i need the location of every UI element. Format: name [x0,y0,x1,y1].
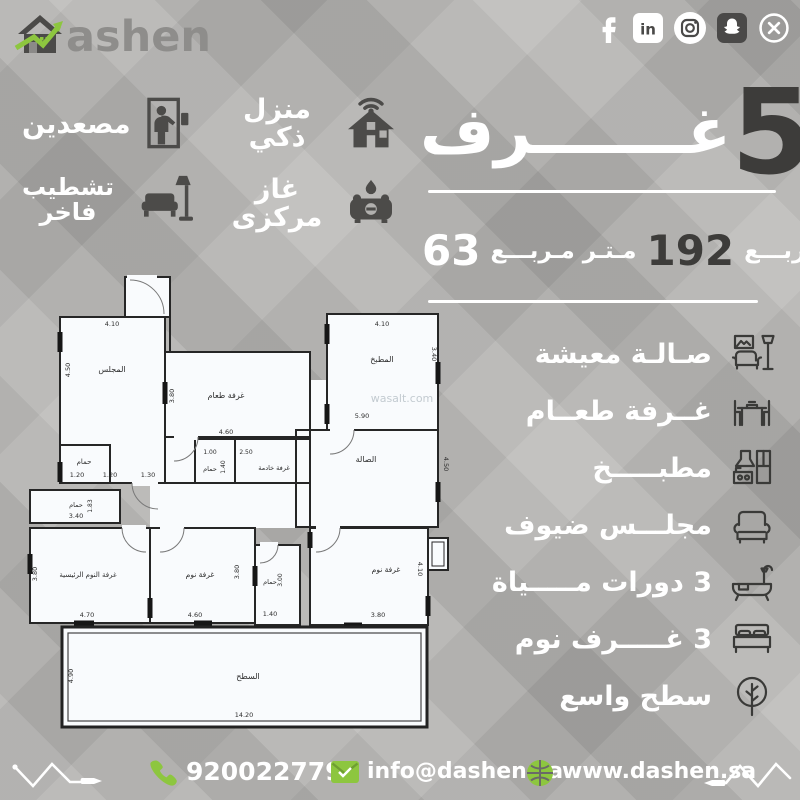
bathroom-icon [728,559,776,607]
floor-plan: المجلس 4.10 4.50 غرفة طعام 4.60 3.80 الم… [14,266,472,748]
feature-elevators: مصعدين [22,94,194,156]
dim-label: 4.10 [375,320,389,328]
room-label: حمام [77,458,92,466]
area-value-large: 192 [646,230,734,272]
room-label: حمام [263,578,277,586]
linkedin-icon[interactable]: in [633,13,663,43]
phone-number[interactable]: 920022779 [186,757,343,786]
x-icon[interactable] [758,12,790,44]
list-item: مجلـــس ضيوف [426,497,776,554]
facebook-icon[interactable] [596,13,622,43]
room-label: السطح [236,672,260,681]
smart-home-icon [342,92,400,156]
dim-label: 4.60 [219,428,233,436]
feature-label-line1: تشطيب [22,173,114,201]
divider-line-top [428,190,776,193]
dim-label: 1.40 [220,460,227,474]
guest-majlis-icon [728,502,776,550]
list-item: مطبـــــخ [426,440,776,497]
living-room-icon [728,331,776,379]
dim-label: 5.90 [355,412,369,420]
bedroom-icon [728,616,776,664]
snapchat-icon[interactable] [717,13,747,43]
feature-luxury-finishing: تشطيب فاخر [22,170,194,230]
divider-line-bottom [428,300,758,303]
dim-label: 4.70 [80,611,94,619]
headline-count: 5 [731,73,800,191]
elevator-icon [140,94,194,156]
room-label: الصالة [356,455,377,464]
feature-label: منزل ذكي [212,96,342,153]
dim-label: 4.50 [64,363,72,377]
headline-word: غـــــــرف [420,95,731,169]
dim-label: 3.40 [69,512,83,520]
roof-tree-icon [728,673,776,721]
area-measurements: 63 مـتـر مـربـــع 192 مـتـر مـربـــع [422,220,794,282]
room-label: غرفة نوم [372,565,401,574]
list-item: غــرفة طعــام [426,383,776,440]
amenity-label: سطح واسع [559,681,712,712]
feature-central-gas: غاز مركزى [212,174,400,234]
gas-stove-icon [342,174,400,234]
dim-label: 4.60 [188,611,202,619]
amenity-label: مطبـــــخ [592,453,712,484]
dim-label: 3.80 [233,565,241,579]
room-label: غرفة نوم [186,570,215,579]
feature-label: مصعدين [22,111,131,139]
globe-icon [525,758,555,792]
dim-label: 1.30 [141,471,155,479]
phone-icon [148,758,178,792]
list-item: 3 غـــــرف نوم [426,611,776,668]
dim-label: 4.90 [67,669,75,683]
dim-label: 3.80 [168,389,176,403]
zigzag-signature-left-icon [10,756,135,796]
svg-text:in: in [640,20,656,38]
dim-label: 3.00 [277,573,284,587]
amenities-list: صـالـة معيشة غــرفة طعــام [426,326,776,725]
flyer: ashen in مصعدين [0,0,800,800]
dim-label: 1.83 [87,499,94,513]
room-label: حمام [69,501,83,509]
dim-label: 4.50 [442,457,450,471]
area-unit-large: مـتـر مـربـــع [744,238,800,264]
dim-label: 4.10 [416,562,424,576]
feature-label: غاز مركزى [212,176,342,233]
list-item: 3 دورات مـــــياة [426,554,776,611]
feature-label-line2: فاخر [40,198,97,226]
room-label: غرفة خادمة [258,464,290,472]
amenity-label: مجلـــس ضيوف [504,510,712,541]
dim-label: 1.20 [103,471,117,479]
dining-room-icon [728,388,776,436]
room-label: المطبخ [370,355,393,364]
kitchen-icon [728,445,776,493]
amenity-label: 3 دورات مـــــياة [492,567,712,598]
feature-smart-home: منزل ذكي [212,92,400,156]
room-label: المجلس [98,365,125,374]
amenity-label: غــرفة طعــام [526,396,712,427]
list-item: صـالـة معيشة [426,326,776,383]
email-icon [330,760,360,788]
room-label: غرفة النوم الرئيسية [59,571,117,579]
dashen-logo: ashen [14,6,224,66]
dim-label: 14.20 [235,711,254,719]
dim-label: 3.80 [371,611,385,619]
dim-label: 1.20 [70,471,84,479]
furnishing-icon [136,170,194,230]
area-unit-small: مـتـر مـربـــع [490,238,636,264]
dim-label: 3.40 [430,347,438,361]
headline-rooms: غـــــــرف 5 [420,76,792,188]
social-icons: in [596,12,790,44]
list-item: سطح واسع [426,668,776,725]
logo-text: ashen [66,12,211,62]
feature-label: تشطيب فاخر [22,175,114,225]
dim-label: 2.50 [239,449,253,456]
dim-label: 1.40 [263,610,277,618]
watermark: wasalt.com [371,392,434,405]
amenity-label: 3 غـــــرف نوم [515,624,712,655]
dim-label: 3.80 [31,567,39,581]
zigzag-signature-right-icon [700,756,796,796]
instagram-icon[interactable] [674,12,706,44]
dim-label: 4.10 [105,320,119,328]
amenity-label: صـالـة معيشة [535,339,712,370]
logo-house-d-icon [16,15,63,53]
room-label: غرفة طعام [208,391,245,400]
dim-label: 1.00 [203,449,217,456]
room-label: حمام [203,465,217,473]
